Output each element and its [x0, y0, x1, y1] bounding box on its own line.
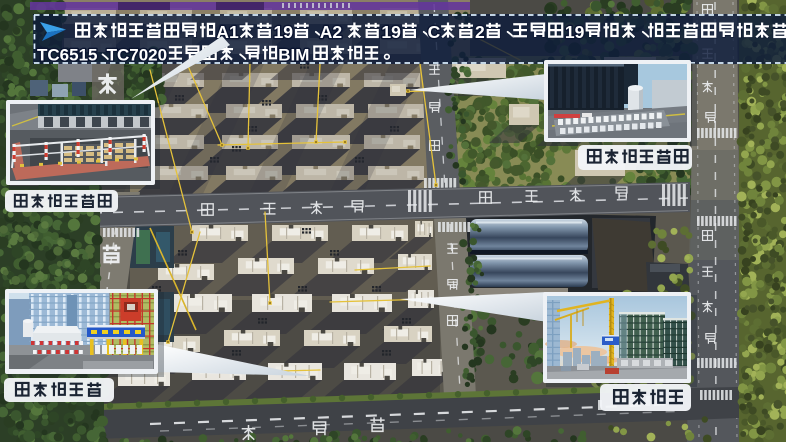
svg-text:19: 19 [274, 22, 294, 42]
svg-text:19: 19 [381, 22, 401, 42]
svg-text:C: C [428, 22, 441, 42]
svg-text:2: 2 [475, 22, 485, 42]
svg-text:A2: A2 [320, 22, 343, 42]
svg-text:TC6515: TC6515 [37, 46, 97, 65]
svg-text:19: 19 [565, 22, 585, 42]
svg-text:TC7020: TC7020 [107, 46, 167, 65]
svg-text:BIM: BIM [278, 46, 309, 65]
